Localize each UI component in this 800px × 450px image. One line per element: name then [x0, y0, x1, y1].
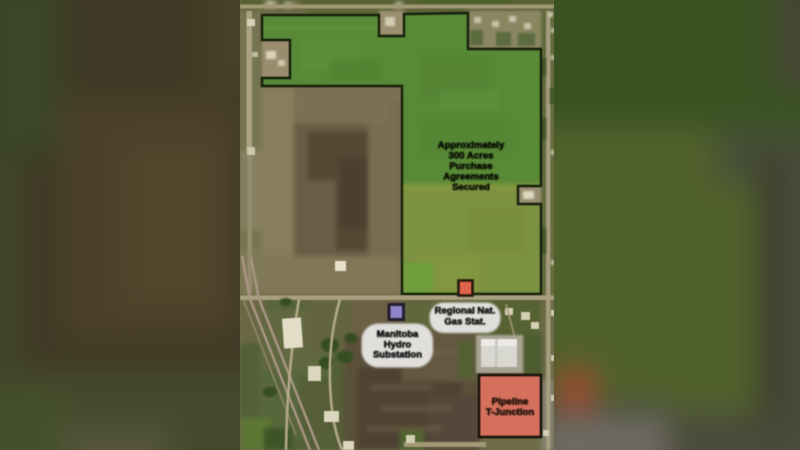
svg-text:Purchase: Purchase [449, 161, 492, 172]
svg-text:T-Junction: T-Junction [486, 407, 535, 418]
svg-text:Agreements: Agreements [443, 172, 498, 183]
svg-text:Regional Nat.: Regional Nat. [435, 306, 496, 317]
svg-text:300 Acres: 300 Acres [449, 151, 494, 162]
svg-text:Secured: Secured [452, 182, 490, 193]
svg-text:Approximately: Approximately [438, 140, 505, 151]
svg-text:Substation: Substation [373, 350, 422, 361]
svg-text:Gas Stat.: Gas Stat. [444, 317, 485, 328]
